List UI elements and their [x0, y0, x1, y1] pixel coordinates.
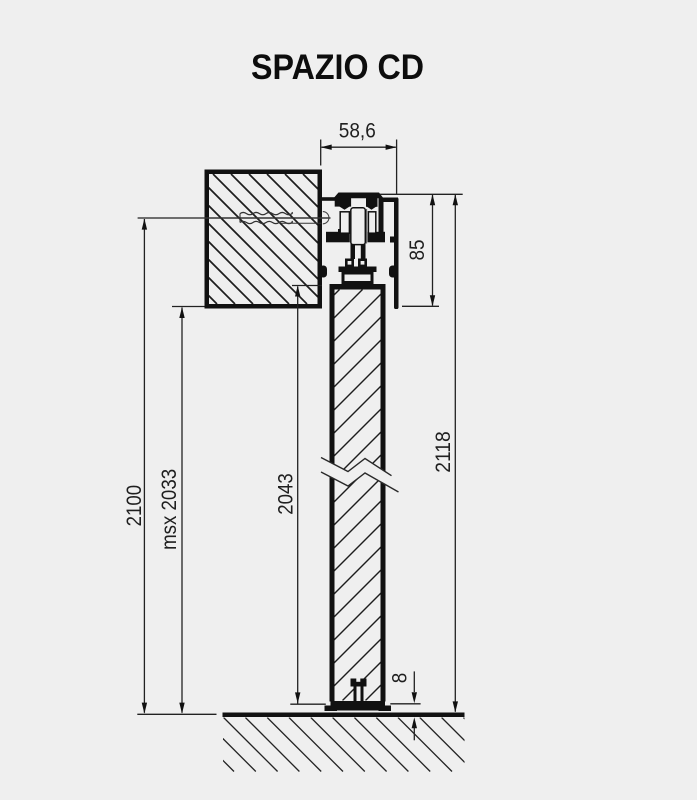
- svg-text:85: 85: [405, 239, 429, 260]
- svg-text:2043: 2043: [273, 473, 297, 515]
- svg-text:2100: 2100: [122, 485, 146, 527]
- svg-text:SPAZIO CD: SPAZIO CD: [251, 47, 424, 87]
- svg-text:58,6: 58,6: [339, 119, 376, 143]
- svg-text:2118: 2118: [431, 431, 455, 473]
- svg-text:8: 8: [388, 673, 412, 684]
- svg-text:msx 2033: msx 2033: [157, 469, 181, 550]
